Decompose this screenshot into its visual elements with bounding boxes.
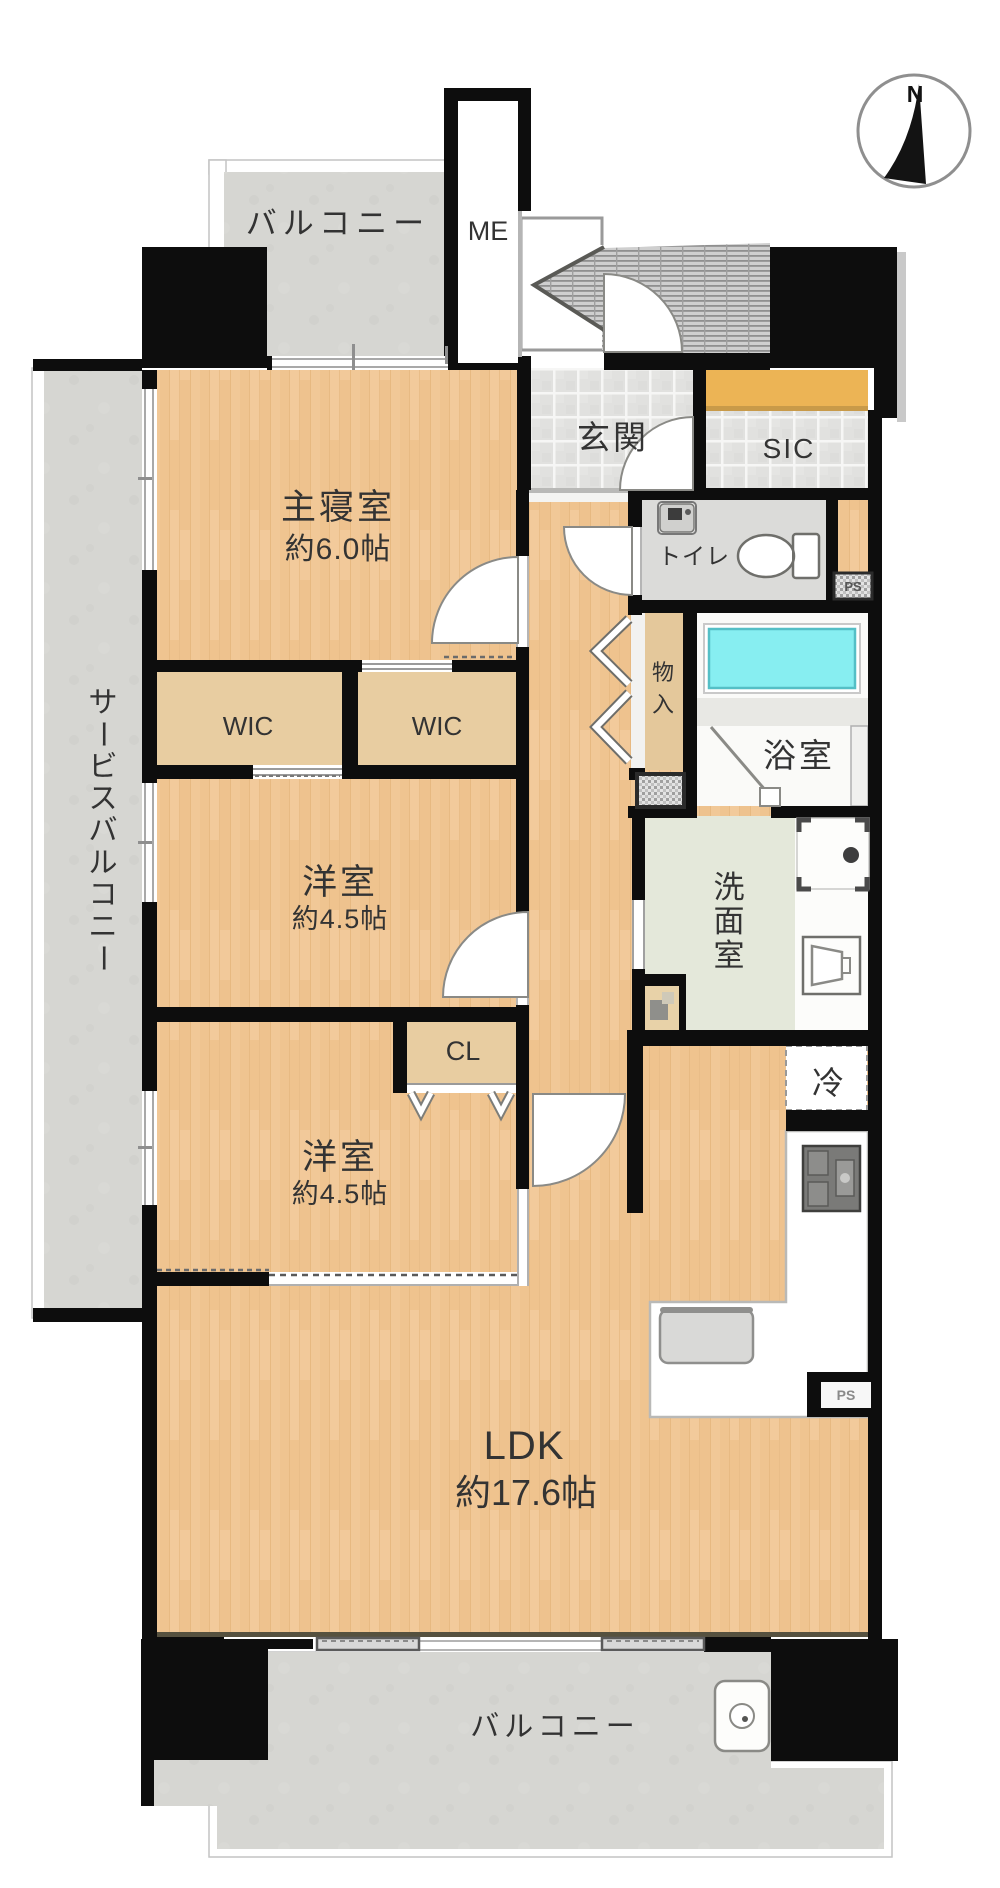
svg-text:サ: サ (88, 687, 117, 719)
svg-text:冷: 冷 (812, 1065, 844, 1101)
svg-text:物: 物 (652, 660, 674, 685)
svg-text:洋室: 洋室 (302, 863, 378, 902)
svg-text:浴室: 浴室 (763, 737, 835, 774)
svg-text:ニ: ニ (88, 911, 117, 943)
svg-text:ス: ス (88, 783, 117, 815)
svg-text:洗: 洗 (714, 870, 745, 905)
svg-text:ー: ー (86, 943, 118, 972)
svg-text:約4.5帖: 約4.5帖 (292, 904, 389, 934)
svg-text:約17.6帖: 約17.6帖 (455, 1472, 597, 1513)
svg-text:ビ: ビ (88, 751, 117, 783)
svg-text:N: N (907, 81, 924, 107)
svg-text:玄関: 玄関 (577, 419, 649, 456)
svg-text:ME: ME (468, 216, 509, 246)
svg-text:室: 室 (714, 938, 745, 973)
svg-text:PS: PS (844, 579, 862, 594)
svg-text:LDK: LDK (484, 1424, 565, 1468)
svg-text:入: 入 (652, 692, 674, 717)
svg-text:洋室: 洋室 (302, 1138, 378, 1177)
svg-text:ル: ル (88, 847, 117, 879)
svg-text:コ: コ (88, 879, 117, 911)
svg-text:バルコニー: バルコニー (246, 206, 430, 241)
svg-text:バルコニー: バルコニー (470, 1711, 639, 1743)
svg-text:ー: ー (86, 719, 118, 748)
svg-text:トイレ: トイレ (658, 543, 730, 569)
svg-text:約6.0帖: 約6.0帖 (285, 533, 392, 566)
svg-text:SIC: SIC (763, 433, 816, 464)
svg-text:主寝室: 主寝室 (281, 488, 395, 527)
svg-text:PS: PS (837, 1387, 856, 1403)
svg-text:WIC: WIC (412, 711, 463, 741)
svg-text:バ: バ (88, 815, 117, 847)
svg-text:WIC: WIC (223, 711, 274, 741)
svg-text:面: 面 (714, 904, 745, 939)
svg-text:約4.5帖: 約4.5帖 (292, 1179, 389, 1209)
svg-text:CL: CL (446, 1036, 481, 1066)
